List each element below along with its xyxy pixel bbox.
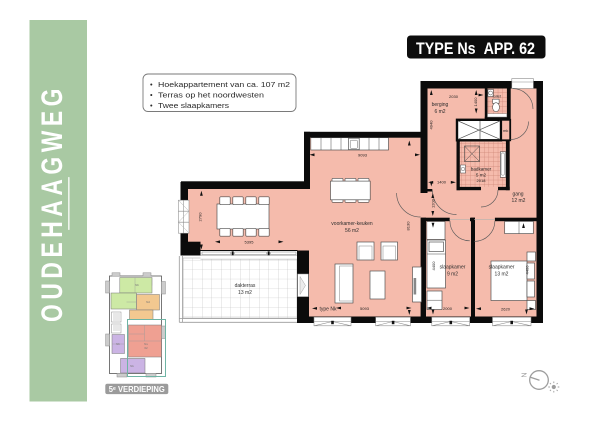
svg-text:2030: 2030 [449, 94, 459, 99]
svg-text:2790: 2790 [198, 212, 203, 222]
svg-text:2018: 2018 [477, 178, 487, 183]
svg-text:toilet: toilet [492, 94, 501, 99]
svg-text:6 m2: 6 m2 [434, 109, 445, 115]
svg-text:slaapkamer: slaapkamer [440, 265, 466, 271]
svg-text:1400: 1400 [437, 180, 447, 185]
svg-text:12 m2: 12 m2 [512, 198, 526, 204]
svg-text:Nh: Nh [116, 342, 120, 346]
svg-text:4400: 4400 [525, 265, 530, 275]
svg-text:Twee slaapkamers: Twee slaapkamers [158, 101, 229, 110]
svg-text:1400: 1400 [473, 97, 478, 107]
svg-text:•: • [150, 91, 153, 100]
svg-text:56 m2: 56 m2 [345, 228, 359, 234]
svg-text:•: • [150, 101, 153, 110]
svg-text:5093: 5093 [360, 306, 370, 311]
svg-text:Nb: Nb [135, 283, 139, 287]
svg-text:9 m2: 9 m2 [447, 272, 458, 278]
svg-text:2000: 2000 [443, 306, 453, 311]
svg-text:N: N [520, 372, 529, 377]
svg-text:gang: gang [512, 192, 523, 198]
svg-text:Nk: Nk [130, 364, 134, 368]
svg-text:5ᵉ VERDIEPING: 5ᵉ VERDIEPING [109, 385, 165, 394]
svg-text:Nd: Nd [146, 300, 150, 304]
svg-text:OUDEHAAGWEG: OUDEHAAGWEG [36, 84, 69, 322]
svg-text:Terras op het noordwesten: Terras op het noordwesten [158, 91, 264, 100]
svg-text:4400: 4400 [431, 261, 436, 271]
svg-text:Hoekappartement van ca. 107 m2: Hoekappartement van ca. 107 m2 [158, 80, 290, 89]
svg-text:•: • [150, 80, 153, 89]
svg-text:8130: 8130 [406, 221, 411, 231]
svg-text:type Nk: type Nk [320, 307, 337, 313]
svg-text:13 m2: 13 m2 [238, 290, 252, 296]
svg-text:13 m2: 13 m2 [495, 272, 509, 278]
svg-text:dakterras: dakterras [235, 283, 256, 289]
svg-text:1200: 1200 [431, 198, 436, 208]
svg-text:62: 62 [144, 346, 148, 350]
svg-text:mk: mk [503, 128, 508, 133]
svg-text:voorkamer-keuken: voorkamer-keuken [331, 221, 373, 227]
svg-text:berging: berging [432, 102, 449, 108]
svg-text:4940: 4940 [429, 120, 434, 130]
svg-text:5 m2: 5 m2 [476, 173, 487, 178]
svg-text:badkamer: badkamer [471, 167, 492, 172]
svg-text:2620: 2620 [501, 307, 511, 312]
svg-text:9093: 9093 [358, 153, 368, 158]
svg-text:slaapkamer: slaapkamer [489, 265, 515, 271]
svg-text:5395: 5395 [245, 240, 255, 245]
svg-text:TYPE Ns APP. 62: TYPE Ns APP. 62 [416, 40, 535, 58]
